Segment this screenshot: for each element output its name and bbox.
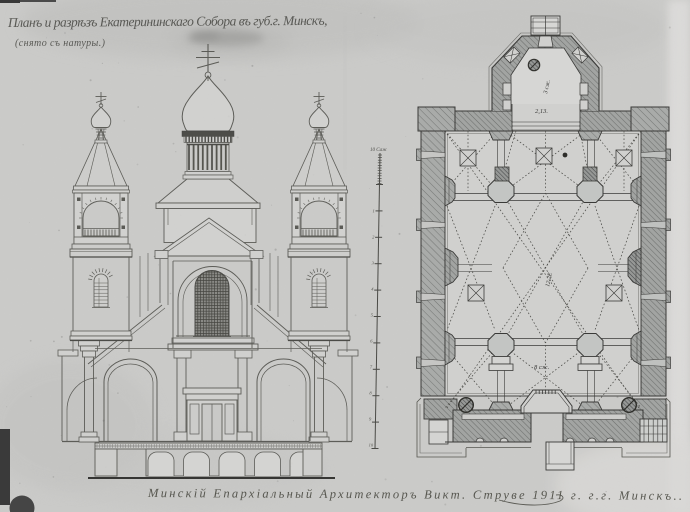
svg-text:Планъ и разрѣзъ Екатерининскаг: Планъ и разрѣзъ Екатерининскаго Собора в… — [7, 13, 328, 30]
svg-text:2,13.: 2,13. — [535, 108, 548, 115]
svg-text:1: 1 — [373, 209, 375, 214]
svg-text:Минскій Епархіальный Архитекто: Минскій Епархіальный Архитекторъ Викт. С… — [147, 486, 682, 503]
svg-text:10 Саж: 10 Саж — [370, 148, 387, 153]
svg-text:8 сж.: 8 сж. — [534, 364, 550, 371]
svg-text:10: 10 — [369, 443, 374, 448]
svg-text:(снято съ натуры.): (снято съ натуры.) — [15, 38, 106, 49]
